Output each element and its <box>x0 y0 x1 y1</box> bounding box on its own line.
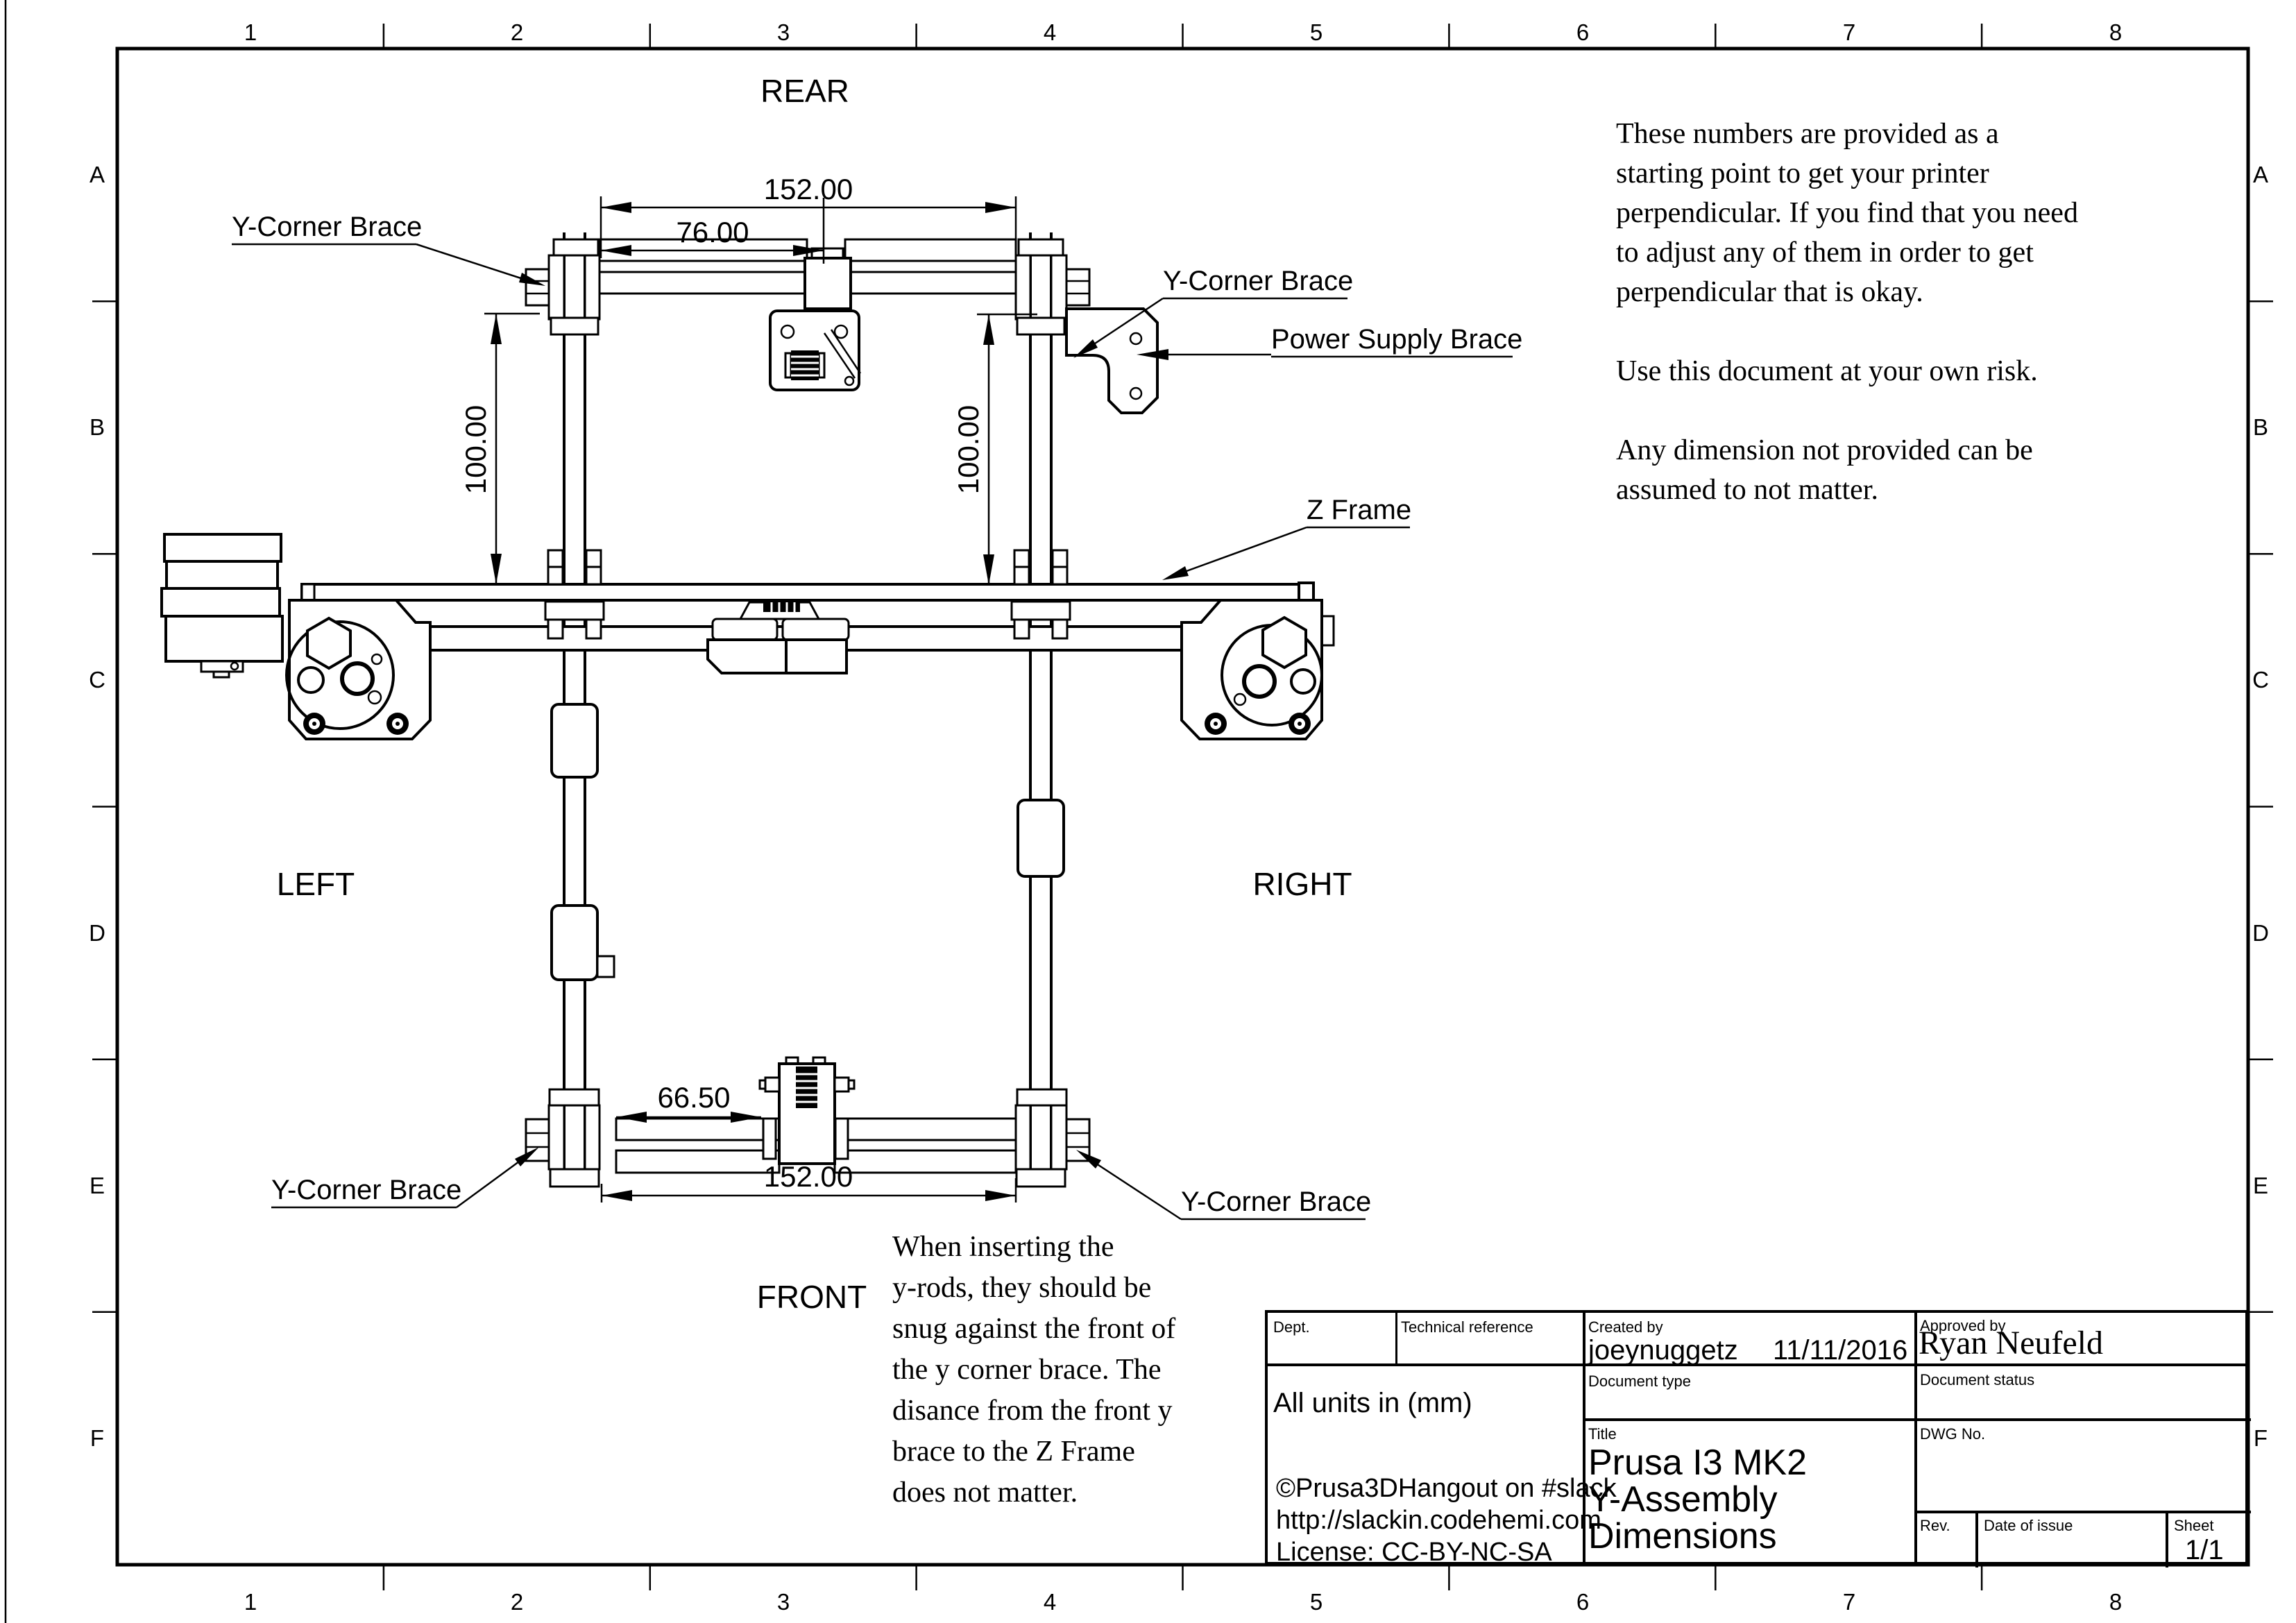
rod-couplers <box>552 704 1064 980</box>
label-created-by: Created by <box>1588 1318 1663 1336</box>
callout-text: Z Frame <box>1307 495 1411 525</box>
z-motor-left <box>162 534 282 677</box>
grid-row-label: D <box>89 920 105 946</box>
callout-y-corner-brace-top-left: Y-Corner Brace <box>232 212 545 286</box>
orientation-label-rear: REAR <box>760 73 849 109</box>
label-document-status: Document status <box>1920 1371 2034 1389</box>
orientation-label-right: RIGHT <box>1252 866 1352 902</box>
grid-col-label: 3 <box>777 19 790 45</box>
grid-col-label: 6 <box>1576 19 1589 45</box>
callout-y-corner-brace-bottom-right: Y-Corner Brace <box>1076 1150 1371 1219</box>
grid-row-label: D <box>2252 920 2269 946</box>
grid-ticks-left <box>92 301 117 1312</box>
label-dwg-no: DWG No. <box>1920 1425 1985 1443</box>
dim-text-front-66: 66.50 <box>657 1081 730 1114</box>
grid-labels-bottom: 1 2 3 4 5 6 7 8 <box>244 1589 2122 1615</box>
callout-text: Y-Corner Brace <box>1181 1187 1371 1217</box>
y-corner-brace-front-right <box>1016 1089 1089 1187</box>
titleblock-divider <box>1914 1511 2251 1513</box>
grid-col-label: 1 <box>244 19 257 45</box>
grid-row-label: C <box>2252 667 2269 692</box>
callout-power-supply-brace: Power Supply Brace <box>1137 324 1522 360</box>
units-note: All units in (mm) <box>1273 1388 1472 1419</box>
titleblock-divider <box>2166 1511 2168 1567</box>
created-date-value: 11/11/2016 <box>1773 1335 1907 1366</box>
grid-col-label: 8 <box>2109 1589 2122 1615</box>
rear-assembly <box>526 239 1157 413</box>
label-technical-reference: Technical reference <box>1401 1318 1533 1336</box>
dim-text-rear-152: 152.00 <box>764 173 853 205</box>
credit-lines: ©Prusa3DHangout on #slack http://slackin… <box>1276 1472 1617 1568</box>
grid-col-label: 2 <box>511 1589 523 1615</box>
grid-col-label: 8 <box>2109 19 2122 45</box>
disclaimer-note: These numbers are provided as a starting… <box>1616 114 2185 510</box>
dim-text-front-152: 152.00 <box>764 1160 853 1193</box>
grid-row-label: A <box>2253 162 2268 187</box>
grid-ticks-top <box>384 24 1982 49</box>
callout-text: Y-Corner Brace <box>271 1175 461 1205</box>
titleblock-divider <box>1914 1313 1917 1562</box>
grid-row-label: B <box>2253 414 2268 440</box>
sheet-value: 1/1 <box>2185 1535 2224 1566</box>
approved-by-value: Ryan Neufeld <box>1919 1324 2103 1362</box>
dimension-right-100: 100.00 <box>952 314 1037 585</box>
grid-col-label: 4 <box>1044 1589 1056 1615</box>
z-bracket-right <box>1182 600 1334 739</box>
callout-text: Y-Corner Brace <box>1163 266 1353 296</box>
y-motor-assembly <box>770 248 860 390</box>
grid-col-label: 3 <box>777 1589 790 1615</box>
dim-text-rear-76: 76.00 <box>676 216 749 248</box>
callout-z-frame: Z Frame <box>1162 495 1411 580</box>
callout-text: Power Supply Brace <box>1271 324 1522 355</box>
grid-col-label: 7 <box>1843 19 1855 45</box>
grid-row-label: F <box>2254 1425 2268 1451</box>
grid-row-label: E <box>2253 1173 2268 1198</box>
orientation-label-front: FRONT <box>757 1279 867 1315</box>
label-rev: Rev. <box>1920 1517 1950 1535</box>
y-corner-brace-front-left <box>526 1089 599 1187</box>
orientation-label-left: LEFT <box>277 866 355 902</box>
drawing-sheet: 1 2 3 4 5 6 7 8 1 2 3 4 5 6 7 8 A B C D … <box>0 0 2296 1623</box>
grid-col-label: 2 <box>511 19 523 45</box>
dimension-front-66: 66.50 <box>616 1081 761 1123</box>
label-document-type: Document type <box>1588 1373 1691 1391</box>
dim-text-right-100: 100.00 <box>952 405 985 494</box>
callout-text: Y-Corner Brace <box>232 212 422 242</box>
front-insertion-note: When inserting the y-rods, they should b… <box>892 1227 1253 1513</box>
callout-y-corner-brace-bottom-left: Y-Corner Brace <box>271 1147 539 1207</box>
label-date-of-issue: Date of issue <box>1984 1517 2073 1535</box>
grid-ticks-right <box>2248 301 2273 1312</box>
grid-col-label: 4 <box>1044 19 1056 45</box>
grid-row-label: E <box>90 1173 105 1198</box>
grid-col-label: 5 <box>1310 1589 1323 1615</box>
dimension-left-100: 100.00 <box>459 314 540 584</box>
grid-row-label: F <box>90 1425 104 1451</box>
y-corner-brace-rear-left <box>526 239 599 334</box>
grid-ticks-bottom <box>384 1565 1982 1590</box>
grid-row-label: C <box>89 667 105 692</box>
belt-idler-mount <box>760 1057 854 1164</box>
grid-col-label: 1 <box>244 1589 257 1615</box>
created-by-value: joeynuggetz <box>1588 1335 1738 1366</box>
titleblock-divider <box>1395 1313 1397 1363</box>
grid-col-label: 7 <box>1843 1589 1855 1615</box>
drawing-title: Prusa I3 MK2 Y-Assembly Dimensions <box>1588 1445 1807 1555</box>
label-dept: Dept. <box>1273 1318 1310 1336</box>
titleblock-divider <box>1583 1418 2251 1421</box>
dim-text-left-100: 100.00 <box>459 405 492 494</box>
grid-col-label: 6 <box>1576 1589 1589 1615</box>
grid-row-label: B <box>90 414 105 440</box>
titleblock-divider <box>1975 1511 1978 1567</box>
grid-row-label: A <box>90 162 105 187</box>
z-bracket-left <box>287 600 430 739</box>
title-block: Dept. Technical reference Created by App… <box>1265 1310 2248 1565</box>
power-supply-brace-part <box>1066 309 1157 413</box>
grid-col-label: 5 <box>1310 19 1323 45</box>
titleblock-divider <box>1268 1363 2245 1366</box>
label-sheet: Sheet <box>2174 1517 2214 1535</box>
label-title: Title <box>1588 1425 1617 1443</box>
